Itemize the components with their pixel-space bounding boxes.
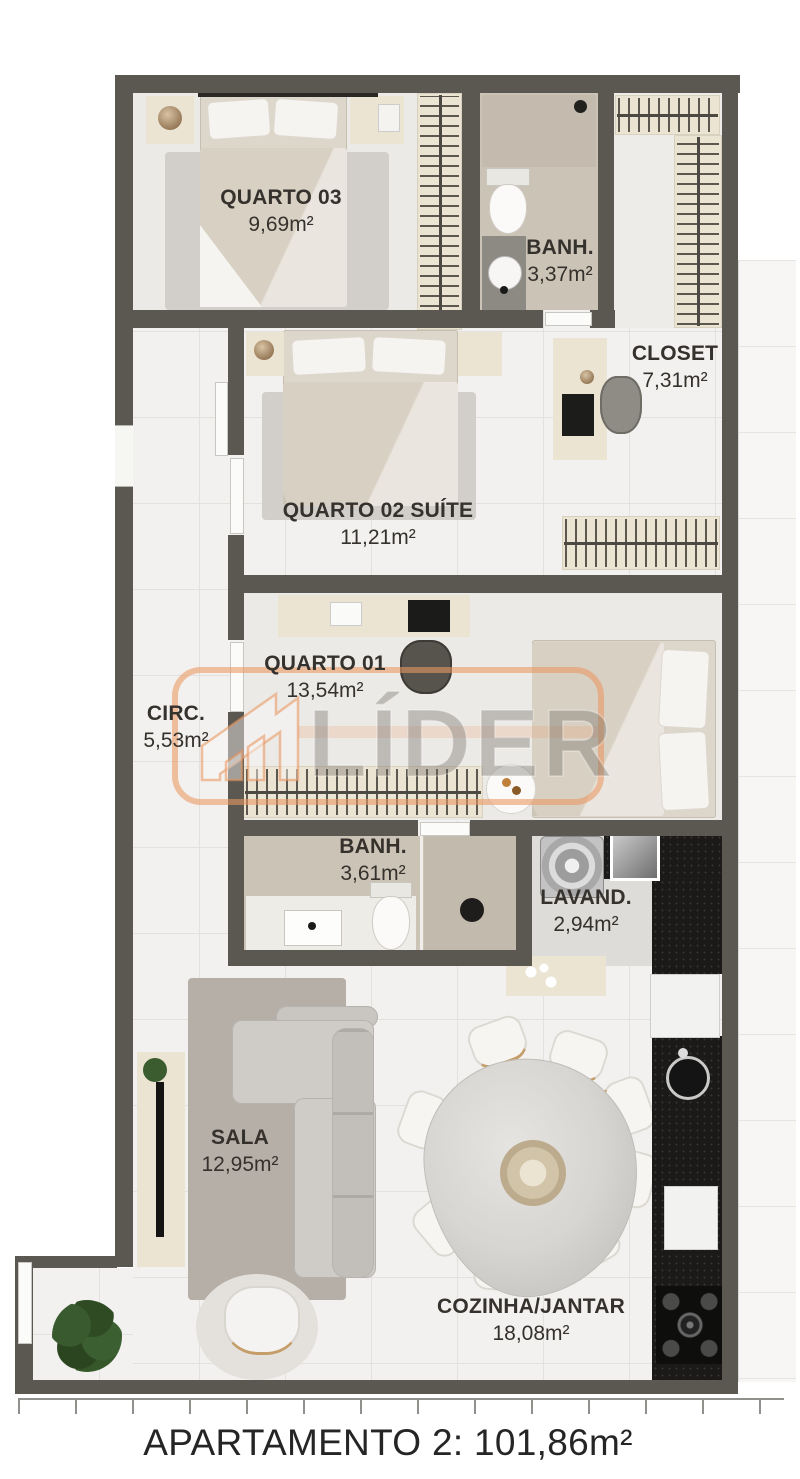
window-suite (115, 425, 133, 487)
plan-caption: APARTAMENTO 2: 101,86m² (143, 1422, 632, 1464)
wall-banh2-bottom (228, 950, 532, 966)
wall-suite-top-b (590, 310, 615, 328)
lamp-quarto03 (158, 106, 182, 130)
room-name: QUARTO 02 SUÍTE (283, 497, 473, 524)
laundry-sink (610, 833, 660, 881)
room-label-quarto03: QUARTO 03 9,69m² (220, 184, 342, 239)
desk-lamp-suite (580, 370, 594, 384)
room-area: 11,21m² (283, 524, 473, 551)
duvet-quarto02 (283, 382, 458, 506)
lamp-quarto02 (254, 340, 274, 360)
room-name: QUARTO 01 (264, 650, 386, 677)
room-label-quarto01: QUARTO 01 13,54m² (264, 650, 386, 705)
room-area: 13,54m² (264, 677, 386, 704)
pillow (207, 98, 271, 140)
room-name: QUARTO 03 (220, 184, 342, 211)
faucet-banh1 (500, 286, 508, 294)
wall-top (115, 75, 740, 93)
room-label-closet: CLOSET 7,31m² (632, 340, 718, 395)
wardrobe-rod (617, 114, 718, 117)
wall-suite-bottom (228, 575, 722, 593)
watermark-logo-icon: LÍDER (168, 662, 638, 808)
plant-large (52, 1300, 122, 1372)
sink-banh1 (488, 256, 522, 290)
faucet-banh2 (308, 922, 316, 930)
wall-banh1-closet (598, 93, 614, 310)
room-label-banh1: BANH. 3,37m² (526, 234, 594, 289)
room-label-cozinha: COZINHA/JANTAR 18,08m² (437, 1293, 625, 1348)
wardrobe-rod (564, 542, 718, 545)
room-area: 5,53m² (143, 727, 208, 754)
sofa-back-cushions (332, 1028, 374, 1278)
wall-suite-top-a (133, 310, 543, 328)
wall-banh2-lavand (516, 836, 532, 950)
pillow (658, 731, 710, 811)
room-name: CLOSET (632, 340, 718, 367)
nightstand-quarto02-right (458, 332, 502, 376)
room-area: 12,95m² (201, 1151, 278, 1178)
fridge (650, 974, 720, 1038)
room-name: LAVAND. (540, 884, 632, 911)
wall-bottom (15, 1380, 738, 1394)
door-balcony (18, 1262, 32, 1344)
plant-small (143, 1058, 167, 1082)
room-name: BANH. (339, 833, 407, 860)
wardrobe-quarto03 (417, 93, 462, 330)
room-area: 3,61m² (339, 860, 407, 887)
room-area: 9,69m² (220, 211, 342, 238)
kitchen-faucet (678, 1048, 688, 1058)
room-label-circ: CIRC. 5,53m² (143, 700, 208, 755)
wardrobe-rod (439, 95, 442, 328)
door-banh2 (420, 822, 470, 836)
laptop-suite (562, 394, 594, 436)
toilet-banh1 (489, 184, 527, 234)
balcony-railing (18, 1398, 784, 1414)
lounge-chair (224, 1286, 300, 1355)
wall-quarto01-bottom-b (470, 820, 722, 836)
kitchen-counter-upper (652, 879, 722, 974)
room-label-sala: SALA 12,95m² (201, 1124, 278, 1179)
wardrobe-closet-top (615, 95, 720, 135)
wall-left (115, 75, 133, 1267)
pillow (291, 336, 367, 376)
room-name: CIRC. (143, 700, 208, 727)
room-name: BANH. (526, 234, 594, 261)
wall-banh2-left (228, 836, 244, 966)
room-label-lavand: LAVAND. 2,94m² (540, 884, 632, 939)
door-banh1 (545, 312, 592, 326)
wardrobe-closet-right (674, 135, 722, 328)
svg-text:LÍDER: LÍDER (308, 690, 616, 797)
cooktop (656, 1286, 724, 1364)
room-name: COZINHA/JANTAR (437, 1293, 625, 1320)
room-name: SALA (201, 1124, 278, 1151)
room-area: 3,37m² (526, 261, 594, 288)
pillow (273, 98, 339, 140)
room-label-quarto02: QUARTO 02 SUÍTE 11,21m² (283, 497, 473, 552)
door-corridor (215, 382, 228, 456)
wall-right (722, 93, 738, 1380)
wall-quarto03-banh1 (462, 93, 480, 310)
wardrobe-rod (697, 137, 700, 326)
paper-quarto01 (330, 602, 362, 626)
floor-plan: LÍDER QUARTO 03 9,69m² BANH. 3,37m² CLOS… (0, 0, 800, 1479)
table-centerpiece (500, 1140, 566, 1206)
wardrobe-quarto02 (562, 516, 720, 570)
kitchen-sink (666, 1056, 710, 1100)
toilet-banh2 (372, 896, 410, 950)
shower-fixture-banh2 (460, 898, 484, 922)
pillow (658, 649, 710, 729)
shower-head-banh1 (574, 100, 587, 113)
room-label-banh2: BANH. 3,61m² (339, 833, 407, 888)
room-area: 2,94m² (540, 911, 632, 938)
pillow (371, 336, 447, 376)
watermark: LÍDER (168, 662, 638, 813)
room-area: 18,08m² (437, 1320, 625, 1347)
shower-glass-banh2 (420, 836, 423, 950)
exterior-tile-strip (738, 260, 796, 1382)
wall-corridor-a (228, 328, 244, 455)
tv (156, 1082, 164, 1237)
room-area: 7,31m² (632, 367, 718, 394)
banh2-shower-floor (424, 836, 516, 950)
door-quarto02 (230, 458, 244, 534)
dishwasher (664, 1186, 718, 1250)
frame-quarto03 (378, 104, 400, 132)
laptop-quarto01 (408, 600, 450, 632)
